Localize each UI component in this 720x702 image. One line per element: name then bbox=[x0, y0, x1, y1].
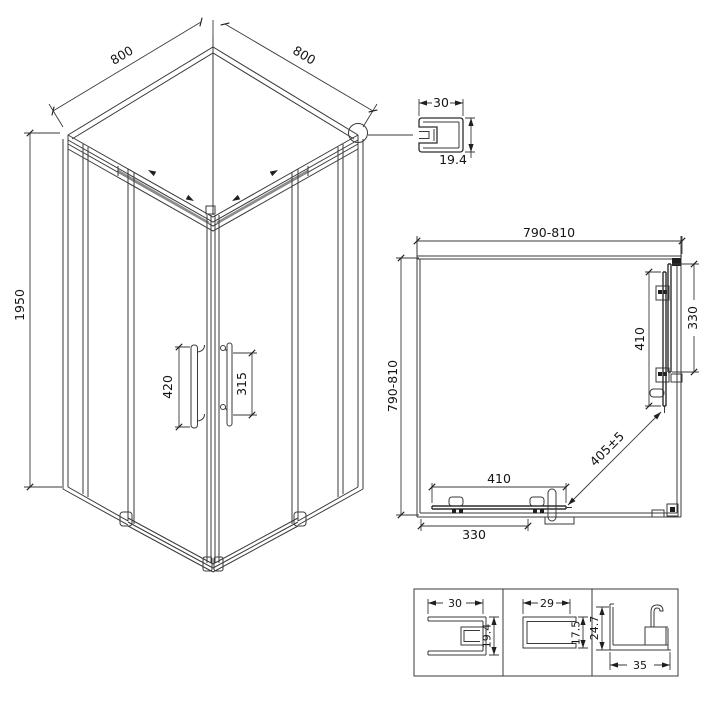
technical-drawing: 800 800 1950 420 bbox=[0, 0, 720, 702]
dim-30-profile: 30 bbox=[419, 95, 463, 116]
dim-label-1950: 1950 bbox=[12, 289, 27, 321]
slide-arrow-icon bbox=[147, 168, 157, 176]
dim-label-330-right: 330 bbox=[685, 306, 700, 330]
dim-label-box1-30: 30 bbox=[448, 597, 462, 610]
dim-330-bottom: 330 bbox=[418, 519, 531, 542]
detail-profile-1: 30 19.4 bbox=[428, 597, 499, 655]
corner-profile-detail: 30 19.4 bbox=[349, 95, 476, 167]
dim-label-790-810-left: 790-810 bbox=[385, 360, 400, 412]
detail-profile-3: 24.7 35 bbox=[588, 604, 671, 672]
dim-405-diagonal: 405±5 bbox=[566, 410, 663, 507]
dim-label-30: 30 bbox=[433, 95, 449, 110]
dim-label-410-right: 410 bbox=[632, 327, 647, 351]
plan-bottom-door-assembly bbox=[432, 489, 574, 524]
dim-label-box2-29: 29 bbox=[540, 597, 554, 610]
dim-label-405-5: 405±5 bbox=[587, 429, 628, 470]
profile-detail-boxes: 30 19.4 29 17.5 bbox=[414, 589, 678, 676]
corner-post-cap bbox=[206, 206, 215, 214]
dim-label-19-4: 19.4 bbox=[439, 152, 467, 167]
wall-profile-section bbox=[419, 118, 463, 152]
dim-800-right: 800 bbox=[221, 20, 378, 127]
roller-clamp bbox=[530, 497, 544, 506]
slide-arrow-icon bbox=[270, 168, 280, 176]
dim-790-810-left: 790-810 bbox=[385, 255, 419, 518]
isometric-view: 800 800 1950 420 bbox=[12, 18, 377, 572]
dim-label-box3-24-7: 24.7 bbox=[588, 616, 601, 641]
roller-clamp bbox=[449, 497, 463, 506]
dim-label-box3-35: 35 bbox=[633, 659, 647, 672]
dim-315-handle: 315 bbox=[233, 350, 257, 418]
dim-800-left: 800 bbox=[49, 18, 213, 127]
enclosure-frame bbox=[63, 37, 363, 572]
hook-profile bbox=[651, 605, 663, 627]
dim-label-790-810-top: 790-810 bbox=[523, 225, 575, 240]
door-knob bbox=[548, 489, 556, 521]
dim-label-410-bottom: 410 bbox=[487, 471, 511, 486]
dim-label-800-right: 800 bbox=[290, 43, 318, 68]
plan-view: 790-810 790-810 330 410 bbox=[385, 225, 700, 542]
dim-330-right: 330 bbox=[672, 261, 700, 375]
door-knob bbox=[650, 389, 664, 397]
dim-410-right: 410 bbox=[632, 269, 661, 409]
detail-profile-2: 29 17.5 bbox=[523, 597, 588, 648]
left-door-handle bbox=[191, 345, 198, 428]
corner-bracket bbox=[672, 258, 681, 266]
dim-label-box2-17-5: 17.5 bbox=[570, 621, 583, 646]
dim-label-box1-19-4: 19.4 bbox=[481, 624, 494, 649]
right-door-handle bbox=[227, 343, 232, 426]
dim-label-315: 315 bbox=[234, 372, 249, 396]
dim-label-420: 420 bbox=[160, 375, 175, 399]
drawing-sheet: 800 800 1950 420 bbox=[0, 0, 720, 702]
dim-label-330-bottom: 330 bbox=[462, 527, 486, 542]
dim-420-handle: 420 bbox=[160, 344, 190, 430]
dim-790-810-top: 790-810 bbox=[414, 225, 685, 254]
plan-frame bbox=[417, 236, 682, 517]
dim-1950-height: 1950 bbox=[12, 130, 62, 490]
